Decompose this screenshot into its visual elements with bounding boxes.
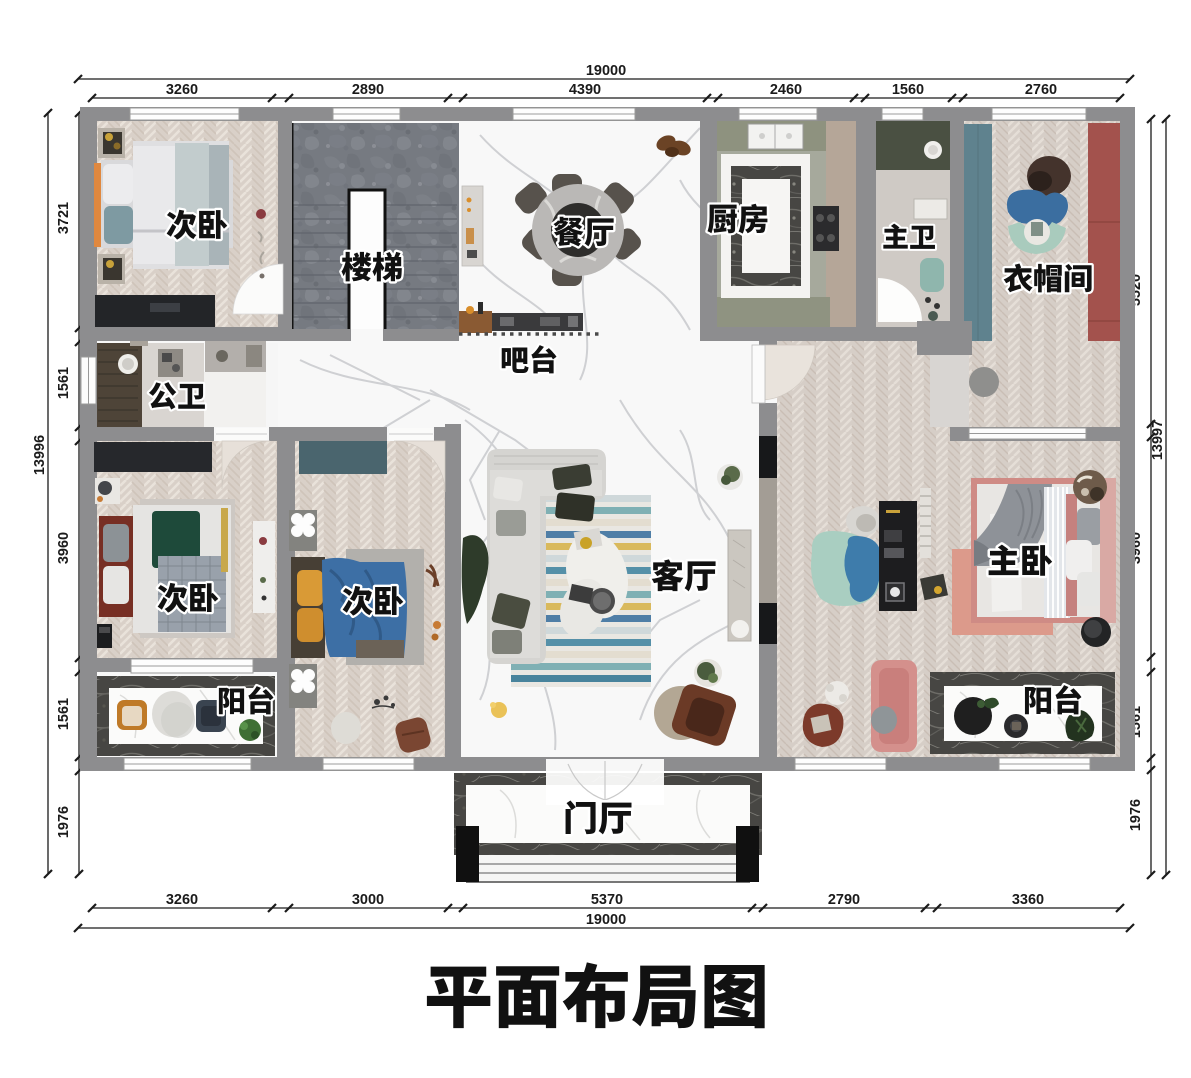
svg-text:2460: 2460: [770, 82, 802, 98]
svg-text:1561: 1561: [56, 367, 72, 399]
svg-text:1976: 1976: [1128, 799, 1144, 831]
svg-text:2760: 2760: [1025, 82, 1057, 98]
svg-text:5370: 5370: [591, 892, 623, 908]
svg-text:3260: 3260: [166, 82, 198, 98]
svg-text:19000: 19000: [586, 63, 626, 79]
svg-text:1561: 1561: [56, 698, 72, 730]
svg-text:19000: 19000: [586, 912, 626, 928]
svg-text:4390: 4390: [569, 82, 601, 98]
svg-text:3360: 3360: [1012, 892, 1044, 908]
svg-text:2890: 2890: [352, 82, 384, 98]
svg-text:2790: 2790: [828, 892, 860, 908]
svg-text:3960: 3960: [56, 532, 72, 564]
svg-text:3721: 3721: [56, 202, 72, 234]
svg-text:1560: 1560: [892, 82, 924, 98]
svg-text:1976: 1976: [56, 806, 72, 838]
svg-text:13997: 13997: [1150, 420, 1166, 460]
svg-text:3260: 3260: [166, 892, 198, 908]
svg-text:13996: 13996: [32, 435, 48, 475]
svg-text:3000: 3000: [352, 892, 384, 908]
